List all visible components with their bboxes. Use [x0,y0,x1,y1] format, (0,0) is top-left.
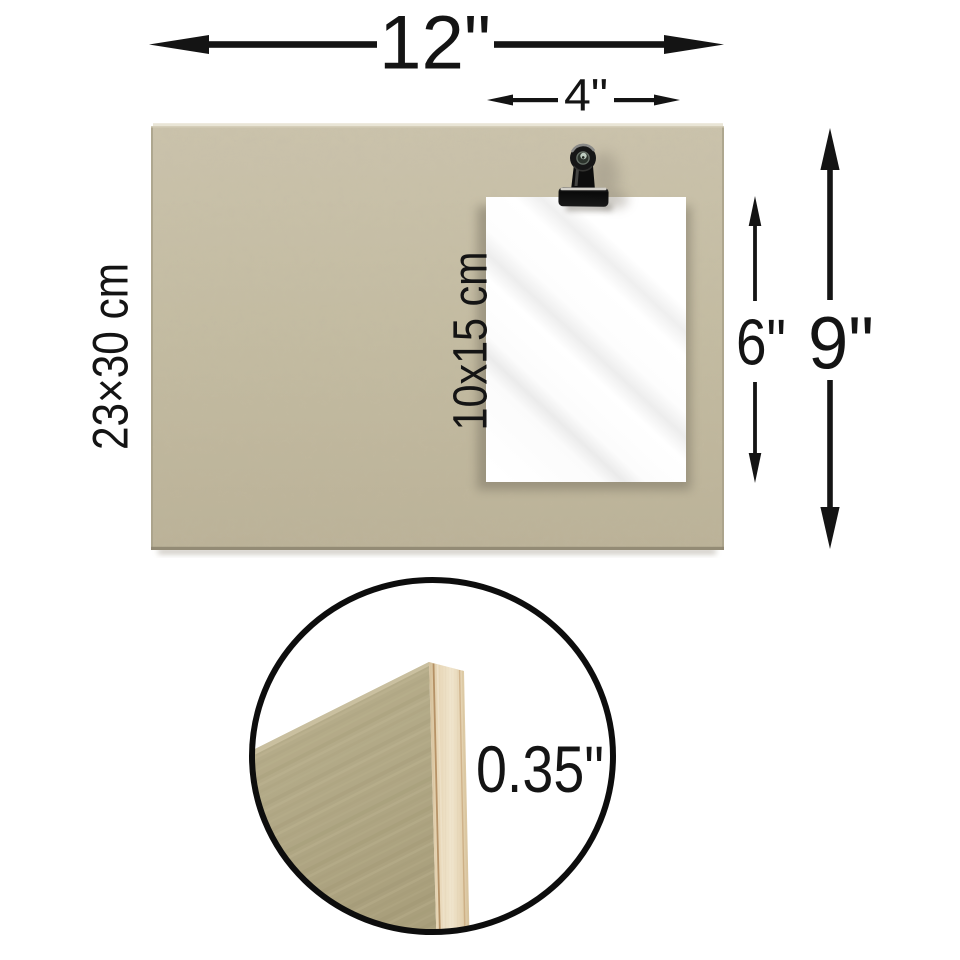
svg-text:0.35": 0.35" [476,732,604,806]
svg-text:23×30 cm: 23×30 cm [83,263,139,450]
svg-text:12": 12" [379,1,491,86]
svg-text:4": 4" [564,69,608,120]
svg-text:10x15 cm: 10x15 cm [445,252,498,431]
svg-text:6": 6" [736,305,786,378]
svg-text:9": 9" [808,302,874,385]
